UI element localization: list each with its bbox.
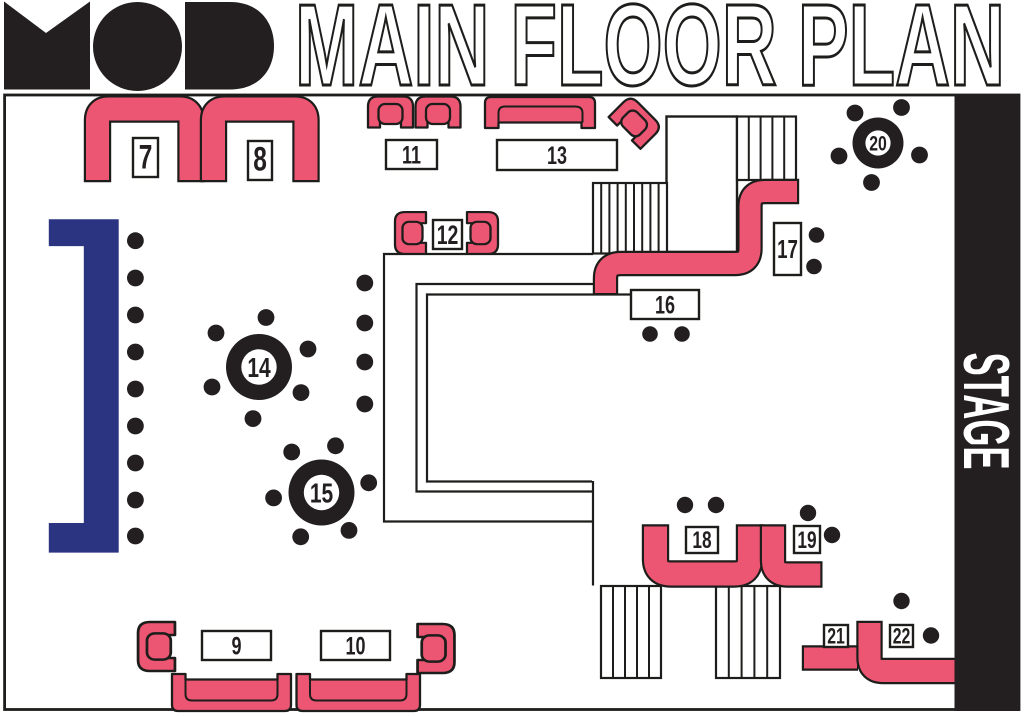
svg-text:7: 7 (139, 139, 153, 177)
svg-text:13: 13 (547, 141, 567, 170)
svg-text:15: 15 (310, 479, 334, 510)
svg-text:19: 19 (797, 527, 816, 553)
svg-text:20: 20 (869, 131, 887, 155)
svg-text:22: 22 (893, 625, 911, 649)
svg-text:14: 14 (247, 353, 271, 384)
svg-text:MAIN FLOOR PLAN: MAIN FLOOR PLAN (295, 0, 1005, 110)
svg-text:21: 21 (827, 625, 845, 649)
svg-text:STAGE: STAGE (950, 353, 1023, 470)
svg-text:18: 18 (692, 527, 711, 553)
svg-text:12: 12 (437, 220, 459, 250)
svg-text:16: 16 (655, 291, 675, 320)
svg-text:9: 9 (231, 632, 241, 661)
svg-text:8: 8 (253, 141, 267, 179)
svg-text:10: 10 (345, 632, 365, 661)
svg-text:11: 11 (402, 141, 421, 170)
svg-text:17: 17 (777, 234, 798, 264)
